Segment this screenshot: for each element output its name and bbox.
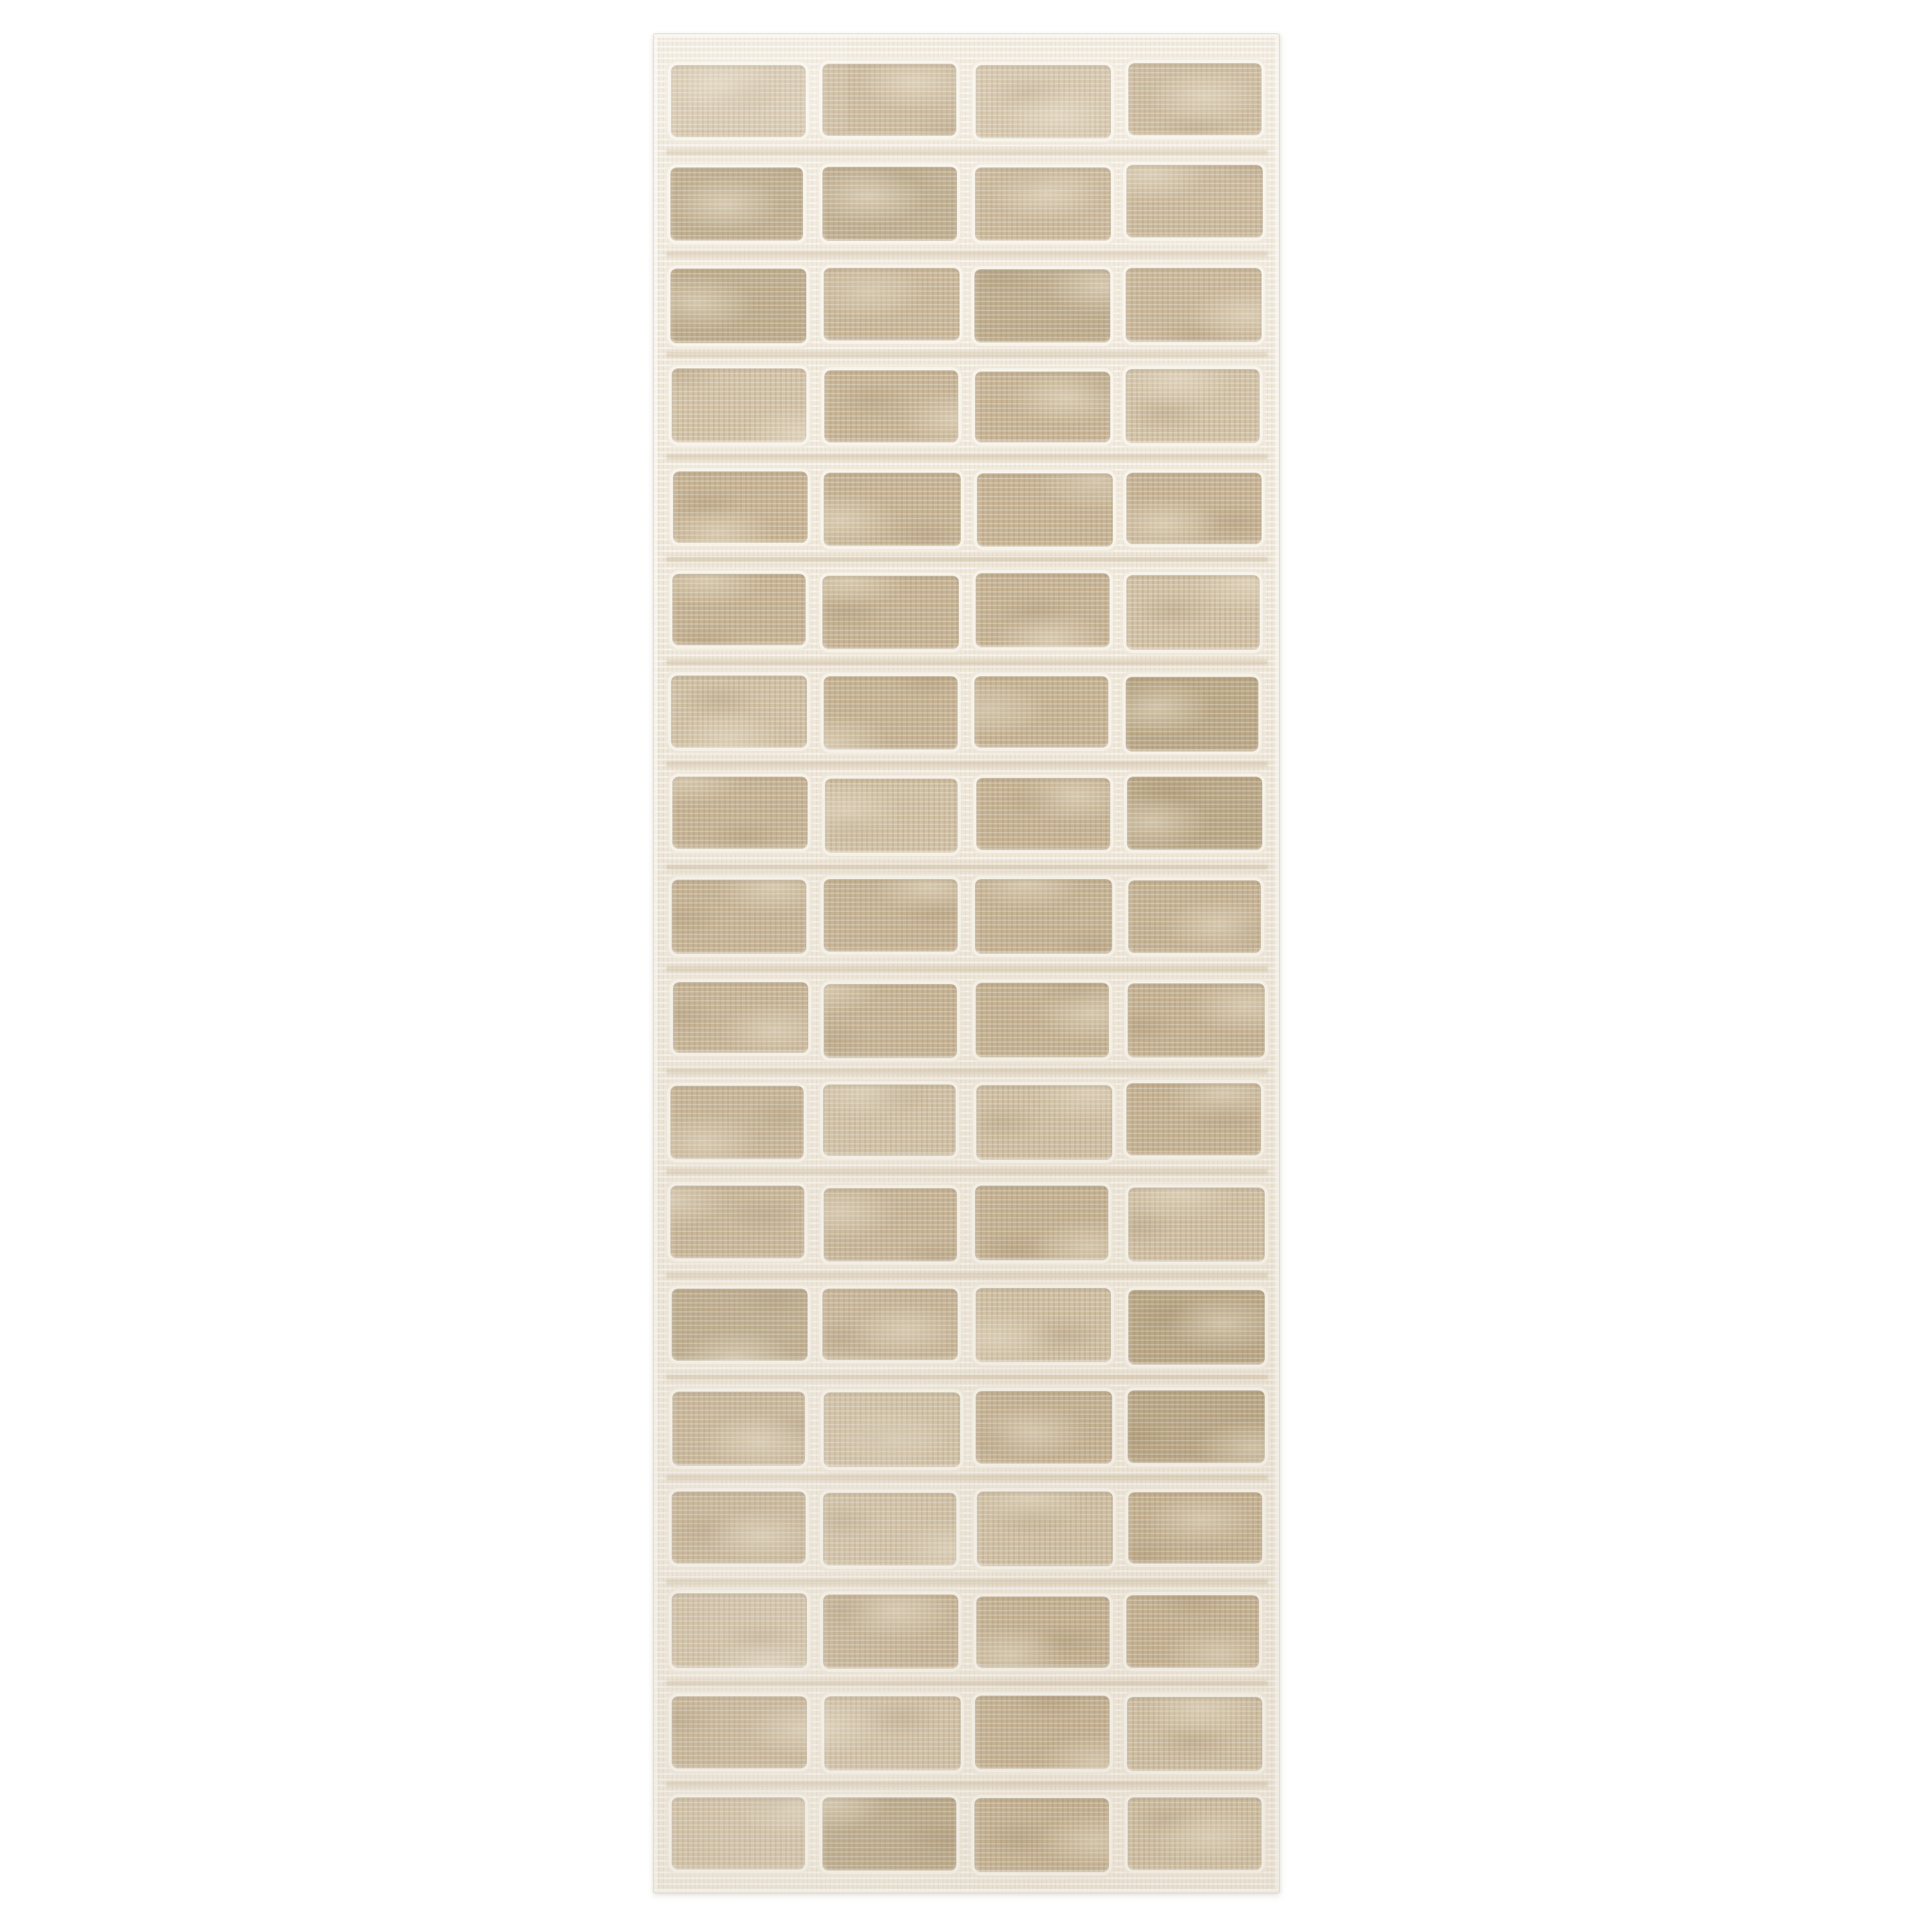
rug-grid-cell — [673, 982, 808, 1054]
rug-groove-line — [667, 967, 1267, 971]
rug-grid-cell — [976, 983, 1110, 1057]
rug-grid-cell — [670, 269, 806, 343]
rug-grid-cell — [672, 574, 806, 645]
rug-grid-cell — [977, 473, 1113, 547]
rug-grid-cell — [976, 1288, 1110, 1362]
rug-grid-cell — [824, 879, 958, 952]
rug-grid-cell — [670, 1086, 804, 1159]
rug-grid-cell — [976, 1085, 1112, 1160]
rug-grid-cell — [975, 167, 1110, 241]
rug-groove-line — [667, 1580, 1267, 1584]
rug-grid-cell — [671, 65, 806, 138]
rug-grid-cell — [672, 777, 808, 848]
rug-grid-cell — [672, 368, 807, 442]
rug-grid-cell — [974, 269, 1110, 343]
rug-grid-cell — [1128, 1390, 1265, 1463]
rug-grid-cell — [822, 167, 956, 241]
rug-grid-cell — [975, 1696, 1109, 1769]
rug-grid-cell — [1127, 777, 1262, 850]
rug-grid-cell — [824, 1188, 957, 1262]
rug-grid-cell — [673, 471, 808, 543]
rug-grid-cell — [976, 573, 1110, 648]
rug-grid-cell — [976, 65, 1111, 138]
rug-groove-line — [667, 1475, 1267, 1480]
rug-grid-cell — [670, 1186, 804, 1258]
rug-grid-cell — [822, 64, 956, 136]
rug-grid-cell — [822, 1289, 958, 1361]
rug-grid-cell — [1126, 677, 1258, 752]
rug-groove-line — [667, 252, 1267, 256]
rug-groove-line — [667, 1069, 1267, 1074]
rug-grid-cell — [976, 1391, 1112, 1464]
rug-grid-cell — [823, 1493, 956, 1565]
rug-groove-line — [667, 1782, 1267, 1786]
rug-grid-cell — [672, 1289, 808, 1361]
rug-groove-line — [667, 1681, 1267, 1685]
rug-groove-line — [667, 557, 1267, 562]
rug-grid-cell — [824, 676, 958, 750]
rug-groove-line — [667, 1273, 1267, 1278]
rug-grid — [654, 34, 1279, 1893]
rug-grid-cell — [822, 576, 959, 649]
rug-grid-cell — [672, 880, 806, 954]
rug-grid-cell — [672, 1593, 807, 1668]
rug-grid-cell — [822, 1797, 956, 1871]
rug-groove-line — [667, 352, 1267, 357]
rug-grid-cell — [823, 1595, 958, 1669]
rug-grid-cell — [1126, 473, 1262, 544]
rug-grid-cell — [672, 1797, 805, 1869]
rug-grid-cell — [1128, 63, 1261, 135]
rug-grid-cell — [671, 676, 807, 748]
rug-grid-cell — [1128, 1290, 1264, 1364]
rug-grid-cell — [825, 779, 958, 852]
rug-grid-cell — [670, 167, 803, 241]
rug-groove-line — [667, 660, 1267, 665]
rug-grid-cell — [1126, 268, 1261, 342]
rug-groove-line — [667, 1170, 1267, 1174]
rug-groove-line — [667, 762, 1267, 766]
rug-grid-cell — [976, 1596, 1110, 1668]
rug-grid-cell — [974, 676, 1108, 748]
rug-grid-cell — [824, 984, 957, 1058]
rug-grid-cell — [672, 1696, 808, 1768]
rug-grid-cell — [672, 1392, 805, 1466]
rug-grid-cell — [975, 1186, 1109, 1260]
rug-grid-cell — [824, 268, 960, 341]
rug-grid-cell — [823, 1084, 956, 1156]
rug-grid-cell — [1126, 1083, 1261, 1155]
rug-groove-line — [667, 865, 1267, 869]
rug-grid-cell — [824, 370, 958, 442]
rug-grid-cell — [824, 1392, 961, 1467]
rug-grid-cell — [1126, 1595, 1260, 1668]
rug-grid-cell — [1128, 880, 1261, 952]
rug-grid-cell — [976, 778, 1110, 849]
rug-grid-cell — [975, 879, 1112, 954]
rug-grid-cell — [824, 473, 961, 546]
product-photo-canvas — [0, 0, 1932, 1932]
rug-grid-cell — [1128, 1188, 1265, 1262]
rug-grid-cell — [1128, 983, 1265, 1058]
rug-grid-cell — [974, 1798, 1109, 1872]
rug-groove-line — [667, 1375, 1267, 1379]
rug-grid-cell — [1128, 1797, 1262, 1870]
rug-grid-cell — [1127, 1697, 1262, 1771]
rug-groove-line — [667, 455, 1267, 459]
rug-grid-cell — [824, 1696, 961, 1770]
rug-groove-line — [667, 150, 1267, 155]
rug-grid-cell — [672, 1492, 806, 1564]
rug-grid-cell — [1128, 1492, 1262, 1564]
rug-grid-cell — [1126, 165, 1264, 238]
rug-grid-cell — [1126, 575, 1260, 650]
rug-runner — [653, 33, 1280, 1893]
rug-grid-cell — [1126, 369, 1260, 444]
rug-grid-cell — [975, 372, 1110, 443]
rug-grid-cell — [977, 1492, 1113, 1566]
